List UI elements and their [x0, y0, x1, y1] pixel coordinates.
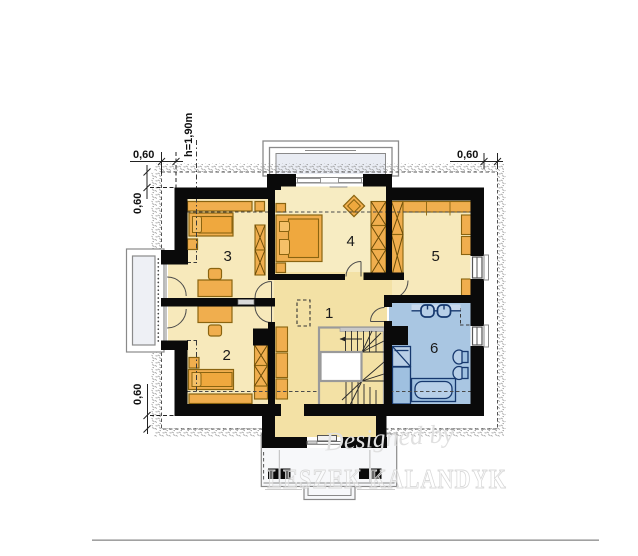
svg-text:6: 6 — [430, 340, 438, 357]
svg-text:3: 3 — [224, 248, 232, 265]
svg-text:0,60: 0,60 — [457, 149, 478, 161]
svg-text:0,60: 0,60 — [133, 149, 154, 161]
svg-text:0,60: 0,60 — [132, 193, 144, 214]
svg-text:h=1,90m: h=1,90m — [183, 112, 195, 157]
svg-text:1: 1 — [325, 305, 333, 322]
svg-text:0,60: 0,60 — [132, 384, 144, 405]
svg-text:LESZEK KALANDYK: LESZEK KALANDYK — [267, 465, 507, 495]
svg-text:5: 5 — [432, 248, 440, 265]
svg-text:4: 4 — [347, 233, 355, 250]
svg-text:2: 2 — [223, 347, 231, 364]
